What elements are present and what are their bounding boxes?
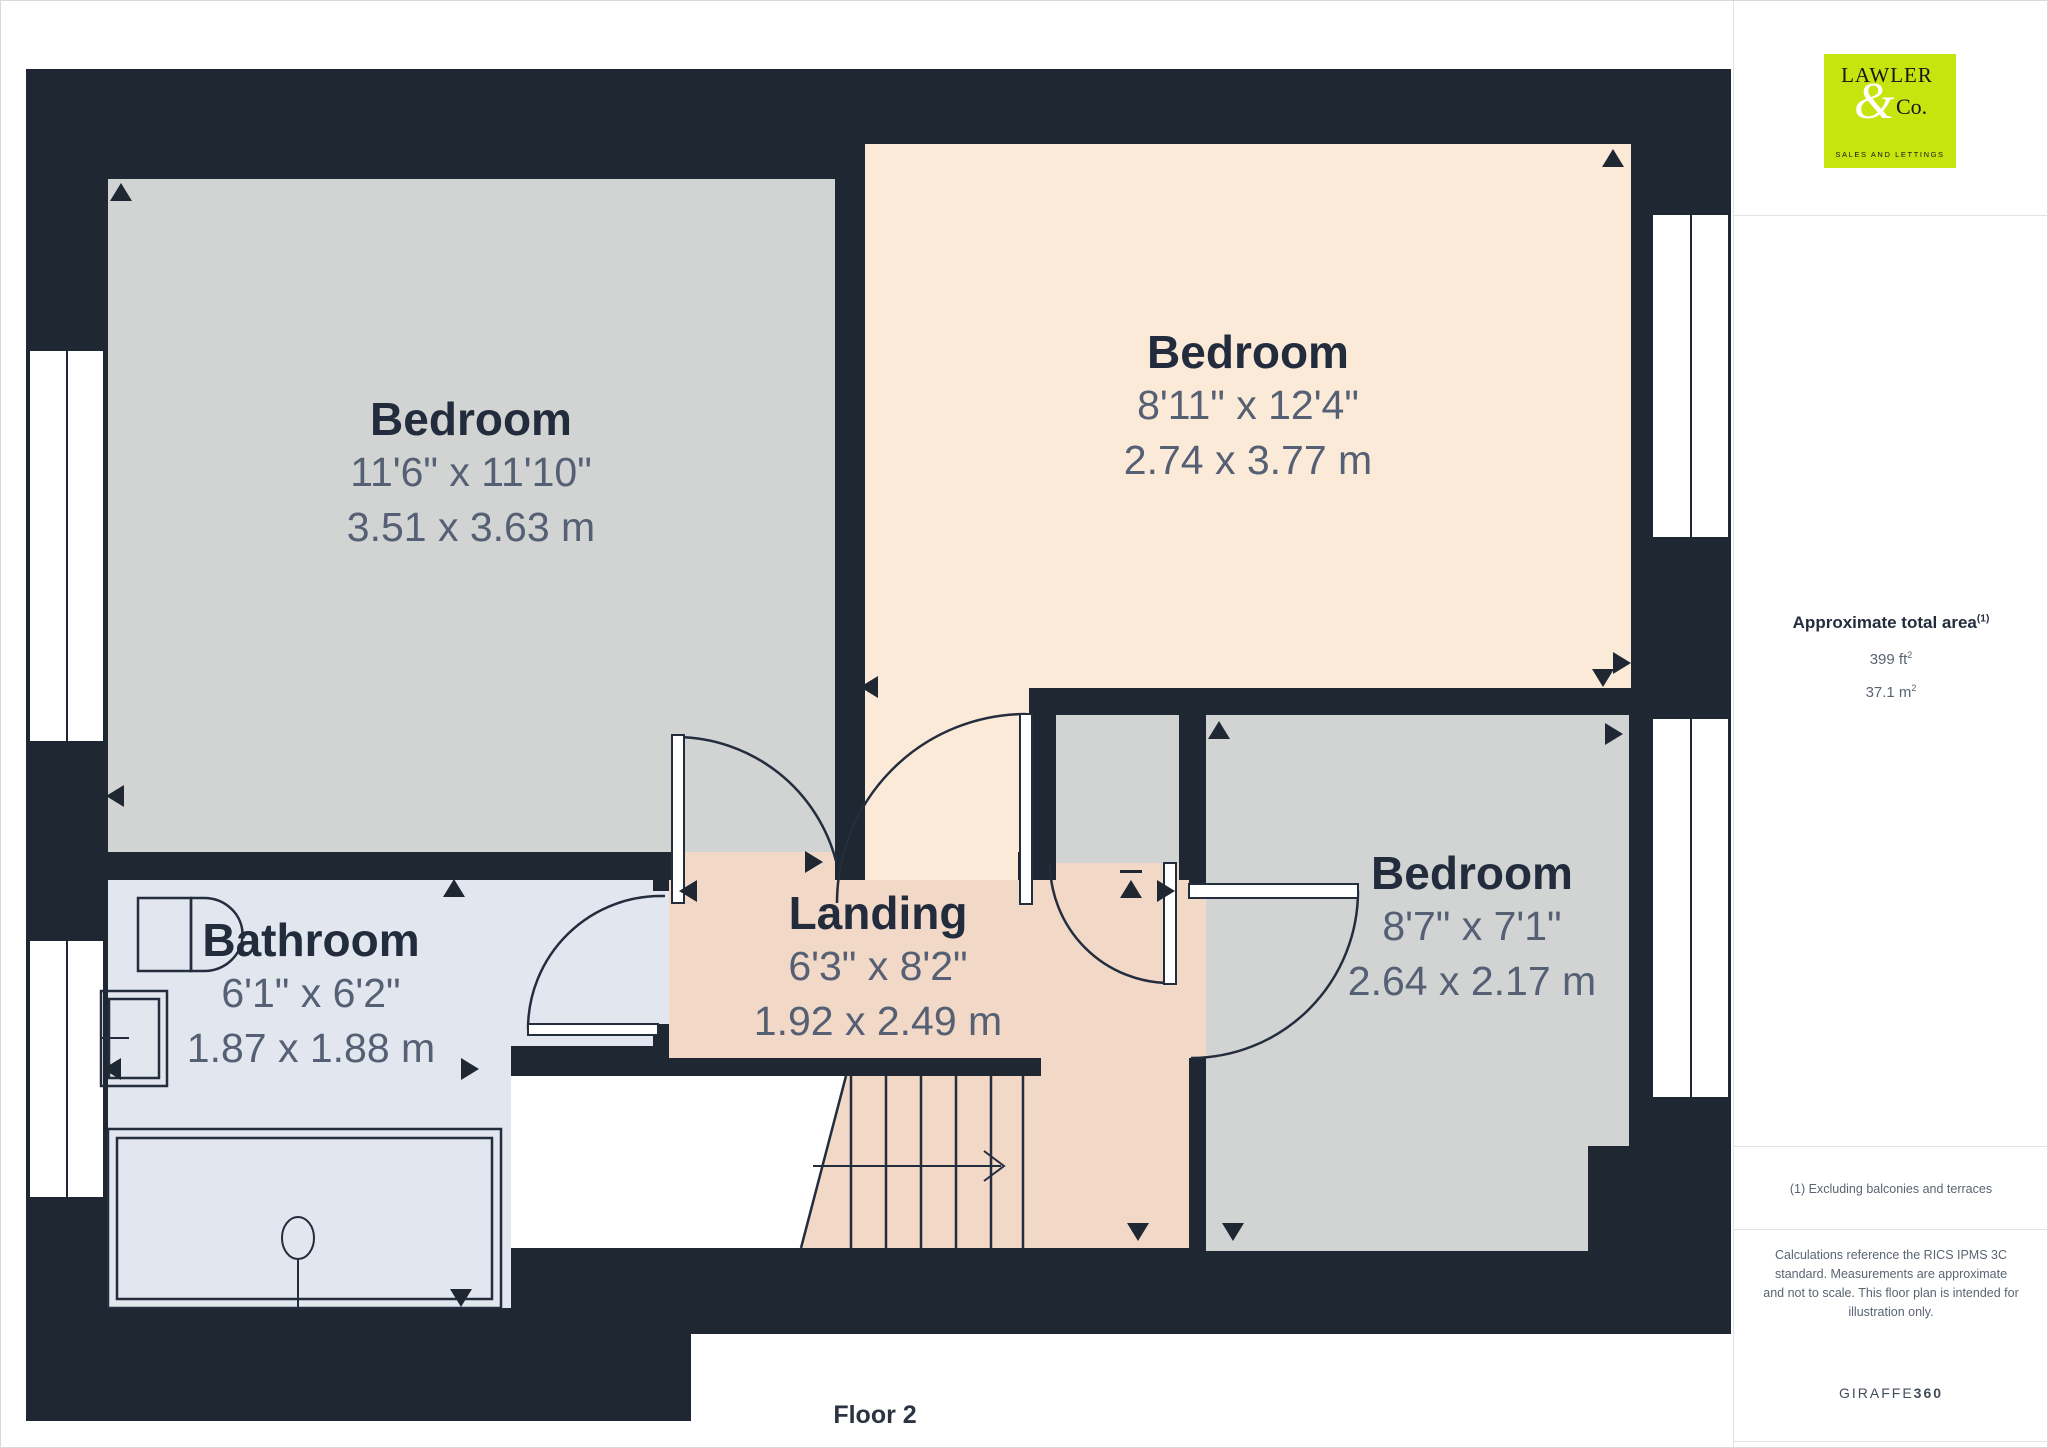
- bedroom2-dims-imperial: 8'11" x 12'4": [1124, 378, 1372, 433]
- bedroom2-dims-metric: 2.74 x 3.77 m: [1124, 433, 1372, 488]
- floorplan-page: Bedroom 11'6" x 11'10" 3.51 x 3.63 m Bed…: [0, 0, 2048, 1448]
- sidebar-divider-1: [1733, 215, 2048, 216]
- giraffe360-brand: GIRAFFE360: [1733, 1385, 2048, 1401]
- stairs-icon: [801, 1076, 1023, 1248]
- bathroom-dims-imperial: 6'1" x 6'2": [187, 966, 435, 1021]
- bathroom-title: Bathroom: [187, 914, 435, 966]
- bedroom1-dims-imperial: 11'6" x 11'10": [347, 445, 595, 500]
- agency-logo-tagline: SALES AND LETTINGS: [1824, 150, 1956, 159]
- bathroom-dims-metric: 1.87 x 1.88 m: [187, 1021, 435, 1076]
- agency-logo: LAWLER & Co. SALES AND LETTINGS: [1824, 54, 1956, 168]
- agency-logo-co: Co.: [1896, 94, 1927, 120]
- bedroom1-door-icon: [672, 735, 836, 903]
- landing-dims-metric: 1.92 x 2.49 m: [754, 994, 1002, 1049]
- bedroom2-label: Bedroom 8'11" x 12'4" 2.74 x 3.77 m: [1124, 326, 1372, 488]
- measurement-arrows: [103, 149, 1631, 1307]
- agency-logo-ampersand: &: [1854, 72, 1894, 131]
- bedroom2-door-icon: [837, 714, 1032, 904]
- landing-title: Landing: [754, 887, 1002, 939]
- disclaimer-text: Calculations reference the RICS IPMS 3C …: [1763, 1246, 2019, 1322]
- total-area-metric: 37.1 m2: [1733, 674, 2048, 707]
- floor-label: Floor 2: [833, 1401, 916, 1430]
- sidebar-divider-3: [1733, 1229, 2048, 1230]
- sidebar-divider-4: [1733, 1441, 2048, 1442]
- landing-dims-imperial: 6'3" x 8'2": [754, 939, 1002, 994]
- bedroom3-door-icon: [1189, 884, 1358, 1058]
- bathtub-icon: [108, 1129, 501, 1308]
- bedroom2-title: Bedroom: [1124, 326, 1372, 378]
- bedroom3-dims-imperial: 8'7" x 7'1": [1348, 899, 1596, 954]
- total-area-imperial: 399 ft2: [1733, 641, 2048, 674]
- bedroom1-dims-metric: 3.51 x 3.63 m: [347, 500, 595, 555]
- plan-symbols-layer: [1, 1, 2048, 1448]
- bedroom3-title: Bedroom: [1348, 847, 1596, 899]
- bathroom-label: Bathroom 6'1" x 6'2" 1.87 x 1.88 m: [187, 914, 435, 1076]
- bedroom3-dims-metric: 2.64 x 2.17 m: [1348, 954, 1596, 1009]
- bedroom1-label: Bedroom 11'6" x 11'10" 3.51 x 3.63 m: [347, 393, 595, 555]
- bathroom-door-icon: [528, 896, 665, 1035]
- total-area-block: Approximate total area(1) 399 ft2 37.1 m…: [1733, 613, 2048, 707]
- sidebar-divider-2: [1733, 1146, 2048, 1147]
- total-area-title: Approximate total area(1): [1733, 613, 2048, 633]
- landing-label: Landing 6'3" x 8'2" 1.92 x 2.49 m: [754, 887, 1002, 1049]
- bedroom3-label: Bedroom 8'7" x 7'1" 2.64 x 2.17 m: [1348, 847, 1596, 1009]
- bedroom1-title: Bedroom: [347, 393, 595, 445]
- area-footnote: (1) Excluding balconies and terraces: [1733, 1180, 2048, 1199]
- sidebar-divider-vertical: [1733, 1, 1734, 1448]
